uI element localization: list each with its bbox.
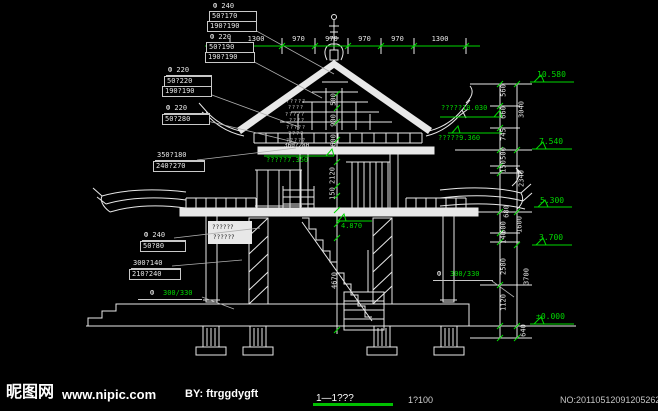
level-note: 4.870 [341, 223, 362, 230]
callout-pier-prefix: Ф [437, 271, 441, 278]
roof-note: ????? [286, 139, 306, 144]
dim-label: 600 [331, 123, 338, 159]
elevation-label: 5.300 [540, 197, 564, 205]
callout-member-label: 300?140 [131, 259, 181, 269]
callout-pier-size: 300/330 [163, 290, 193, 297]
dim-label: 2580 [501, 249, 508, 285]
watermark-site-url: www.nipic.com [62, 388, 156, 401]
dim-label: 150 [330, 176, 337, 212]
elevation-label: 7.540 [539, 138, 563, 146]
callout-underline [433, 280, 493, 281]
wall-note: ?????? [212, 225, 234, 231]
roof-note: ???? [289, 119, 305, 124]
level-note: ?????10.030 [441, 105, 487, 112]
cad-drawing-canvas: Ф 240 50?170 190?190 Ф 220 50?190 190?19… [0, 0, 658, 411]
dim-label: 4670 [332, 263, 339, 299]
watermark-serial: NO:20110512091205262000 [560, 396, 658, 405]
callout-member-label: 190?190 [162, 86, 212, 97]
watermark-site-logo: 昵图网 [6, 385, 54, 401]
elevation-label: ±0.000 [536, 313, 565, 321]
callout-pole-label: Ф 220 [164, 104, 210, 114]
callout-pier-size: 300/330 [450, 271, 480, 278]
callout-member-label: 50?280 [162, 114, 210, 125]
dim-label: 2340 [519, 161, 526, 197]
dim-label: 970 [321, 36, 342, 43]
dim-label: 150 [501, 149, 508, 185]
elevation-label: 3.700 [539, 234, 563, 242]
callout-member-label: 190?190 [207, 21, 257, 32]
callout-pole-label: Ф 220 [166, 66, 212, 76]
dim-label: 970 [354, 36, 375, 43]
beam-size-label: 340?400 [266, 210, 291, 216]
elevation-label: 10.580 [537, 71, 566, 79]
dim-label: 1120 [501, 285, 508, 321]
callout-member-label: 350?180 [155, 151, 205, 161]
dim-label: 1600 [517, 207, 524, 243]
callout-member-label: 190?190 [205, 52, 255, 63]
wall-note: ?????? [213, 235, 235, 241]
callout-pole-label: Ф 240 [142, 231, 186, 241]
callout-member-label: 210?240 [129, 269, 181, 280]
callout-pier-prefix: Ф [150, 290, 154, 297]
callout-underline [138, 299, 202, 300]
dim-label: 640 [521, 313, 528, 349]
roof-note: ???? [288, 132, 304, 137]
level-note: ?????7.350 [266, 157, 308, 164]
dim-label: 1300 [426, 36, 454, 43]
drawing-title: 1—1??? [316, 394, 354, 404]
level-note: ?????9.360 [438, 135, 480, 142]
dim-label: 3040 [519, 92, 526, 128]
dim-label: 970 [288, 36, 309, 43]
drawing-scale: 1?100 [408, 396, 433, 405]
dim-label: 1300 [242, 36, 270, 43]
roof-note: ???? [288, 106, 304, 111]
callout-member-label: 50?80 [140, 241, 186, 252]
callout-member-label: 240?270 [153, 161, 205, 172]
dim-label: 3700 [524, 259, 531, 295]
watermark-author: BY: ftrggdygft [185, 389, 258, 400]
dim-label: 970 [387, 36, 408, 43]
